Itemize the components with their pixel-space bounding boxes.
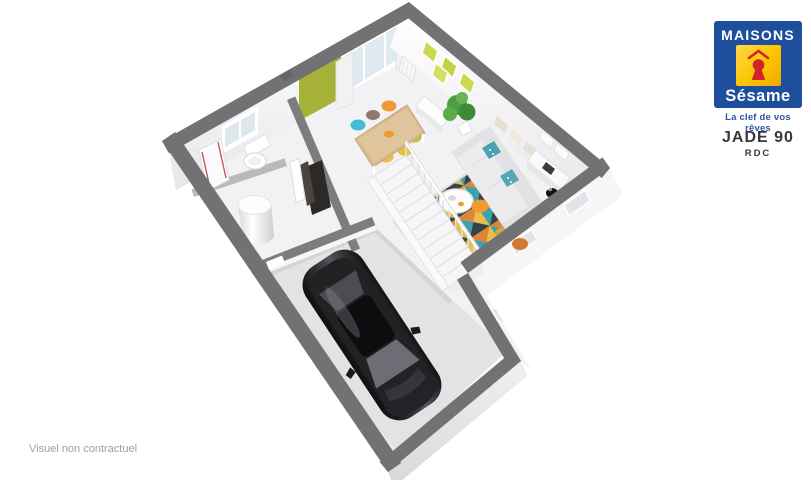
model-title-block: JADE 90 RDC [712,129,804,159]
orange-chair [512,238,528,250]
disclaimer-text: Visuel non contractuel [29,443,137,455]
model-name: JADE 90 [712,129,804,147]
logo-square: MAISONS Sésame [714,21,802,108]
brand-logo: MAISONS Sésame La clef de vos rêves [714,21,802,134]
model-floor-level: RDC [712,148,804,159]
keyhole-icon [736,45,781,86]
orange-pouf [472,200,489,213]
curtain-left [336,52,353,109]
floor-plan-3d-render [0,0,811,480]
logo-maisons-text: MAISONS [721,27,795,43]
bowl [384,131,394,138]
logo-sesame-text: Sésame [725,87,790,106]
page: MAISONS Sésame La clef de vos rêves JADE… [0,0,811,480]
logo-yellow-square [736,45,781,86]
